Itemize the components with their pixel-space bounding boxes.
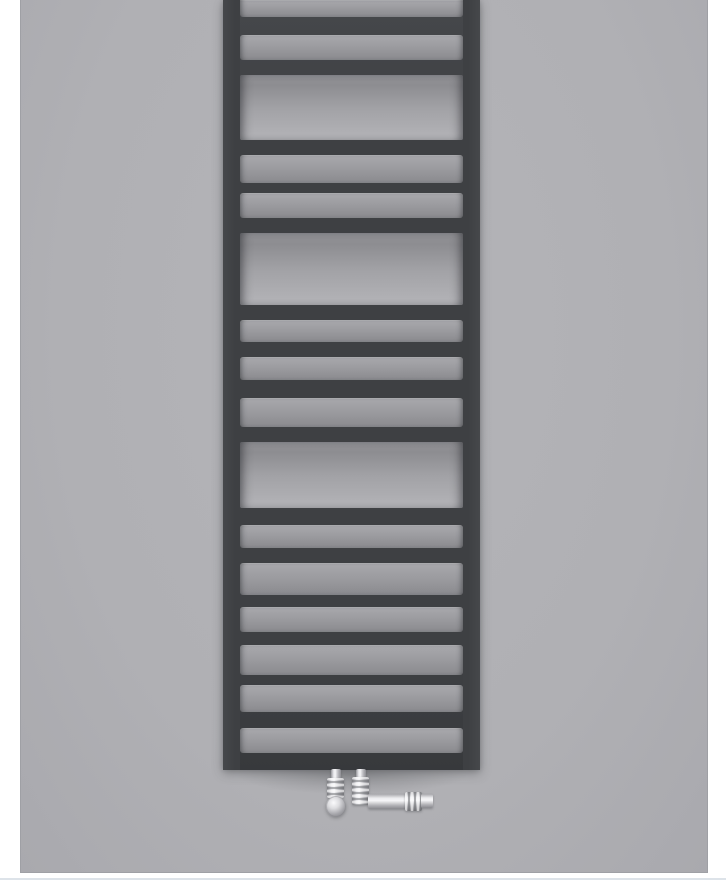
radiator-towel-gap xyxy=(240,75,463,140)
product-photo-stage xyxy=(0,0,726,884)
radiator-bar-face xyxy=(240,0,463,17)
radiator-bar-face xyxy=(240,357,463,380)
radiator-towel-gap xyxy=(240,233,463,305)
valve-left-knob xyxy=(326,796,346,817)
radiator-bar-face xyxy=(240,685,463,712)
page-bottom-rule xyxy=(0,878,726,880)
valve-right-arm xyxy=(368,794,407,809)
radiator-bar-face xyxy=(240,525,463,548)
radiator-right-rail xyxy=(463,0,480,770)
radiator-towel-gap xyxy=(240,442,463,508)
radiator-bar-face xyxy=(240,607,463,632)
valve-left-body xyxy=(327,778,344,798)
valve-right-body xyxy=(352,777,369,805)
radiator-bar-face xyxy=(240,193,463,218)
radiator-left-rail xyxy=(223,0,240,770)
valve-right-tip xyxy=(421,794,433,808)
radiator-bar-face xyxy=(240,320,463,342)
radiator-bar-face xyxy=(240,398,463,427)
radiator-bar-face xyxy=(240,728,463,753)
valve-right-nut xyxy=(405,792,422,811)
radiator-bar-face xyxy=(240,645,463,675)
radiator-bar-face xyxy=(240,155,463,183)
radiator-bar-face xyxy=(240,563,463,595)
radiator-bar-face xyxy=(240,35,463,60)
towel-radiator xyxy=(223,0,480,770)
